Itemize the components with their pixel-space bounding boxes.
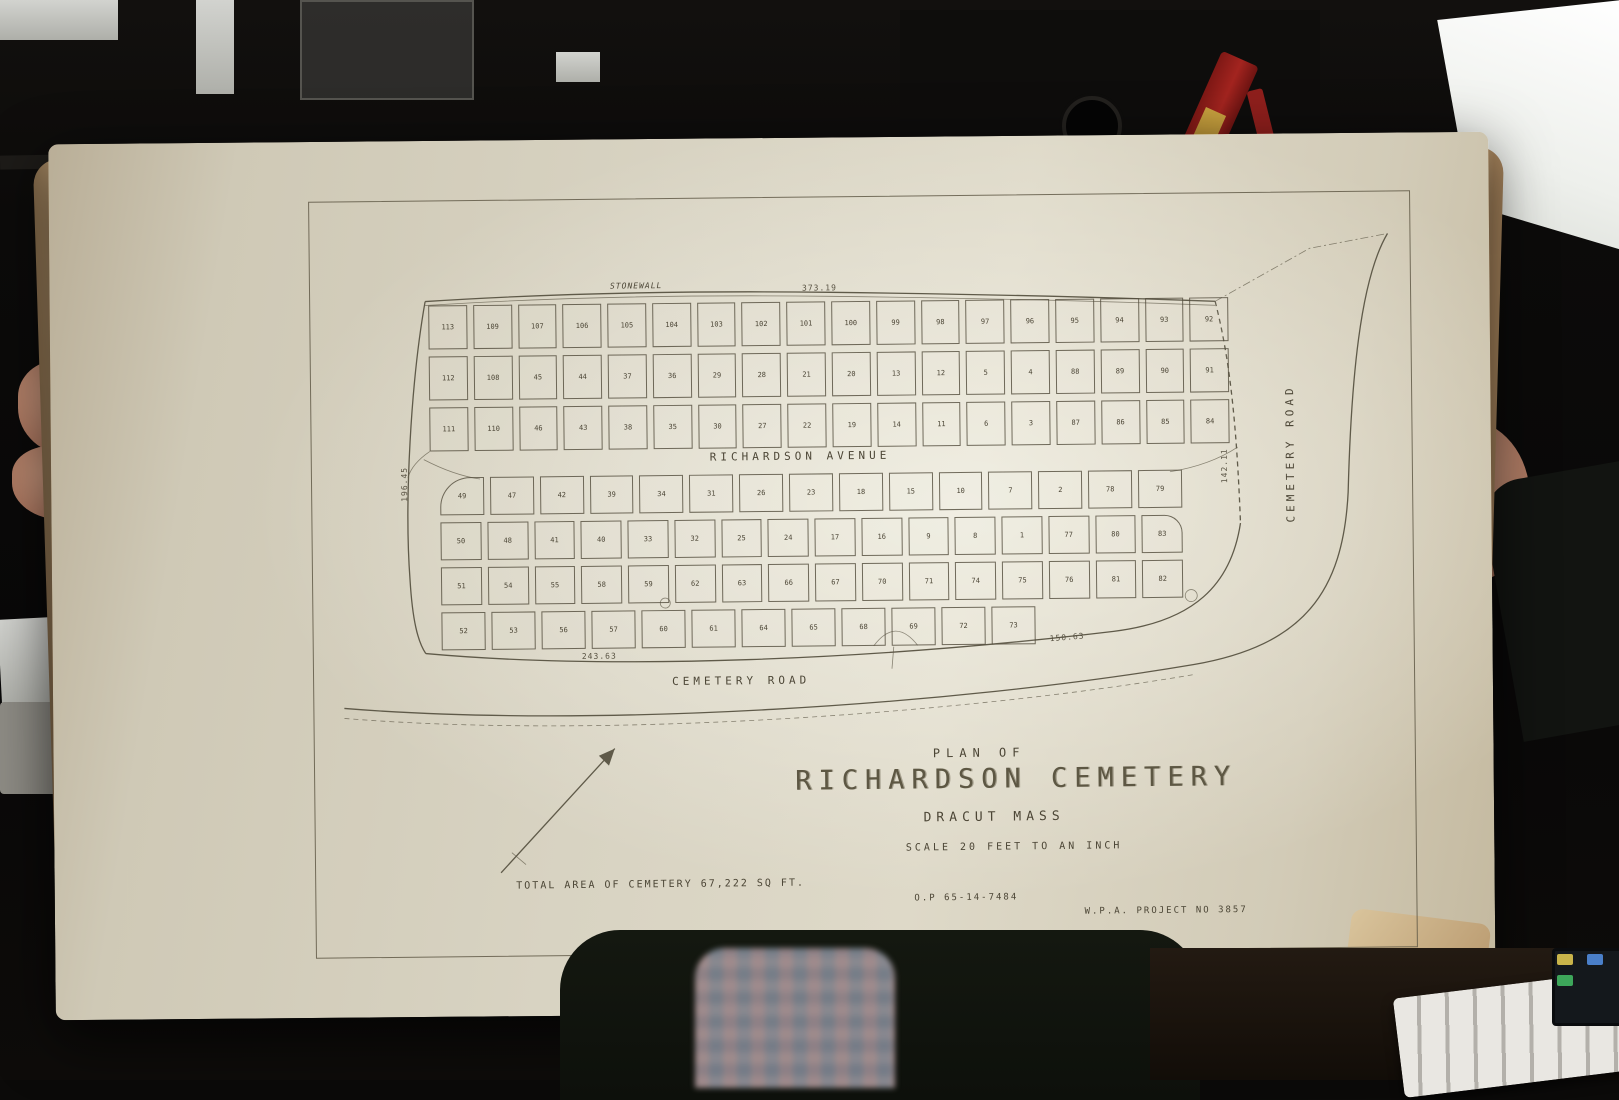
cemetery-lot: 54 — [488, 567, 529, 605]
cemetery-lot: 101 — [786, 301, 825, 345]
shelf-box — [196, 0, 234, 94]
cemetery-road-right-label: CEMETERY ROAD — [1283, 384, 1297, 522]
cemetery-lot: 73 — [991, 606, 1035, 644]
cemetery-lot: 7 — [988, 471, 1032, 509]
cemetery-lot: 32 — [674, 520, 715, 558]
cemetery-lot: 75 — [1002, 561, 1043, 599]
cemetery-lot: 98 — [921, 300, 960, 344]
cemetery-lot: 65 — [791, 608, 835, 646]
device-icon-yellow — [1557, 954, 1573, 965]
cemetery-lot: 44 — [563, 355, 602, 399]
cemetery-lot: 76 — [1049, 561, 1090, 599]
cemetery-lot: 103 — [697, 302, 736, 346]
cemetery-lot: 100 — [831, 301, 870, 345]
dimension-top: 373.19 — [802, 283, 837, 292]
title-plan-of: PLAN OF — [933, 745, 1026, 760]
cemetery-lot: 95 — [1055, 299, 1094, 343]
cemetery-lot: 38 — [608, 405, 647, 449]
cemetery-lot: 69 — [891, 607, 935, 645]
cemetery-lot: 50 — [440, 522, 481, 560]
photo-background: 1131091071061051041031021011009998979695… — [0, 0, 1619, 1080]
device-icon-blue — [1587, 954, 1603, 965]
cemetery-lot: 12 — [921, 351, 960, 395]
cemetery-lot: 28 — [742, 353, 781, 397]
cemetery-lot: 21 — [787, 352, 826, 396]
cemetery-lot: 109 — [473, 305, 512, 349]
cemetery-lot: 86 — [1101, 400, 1140, 444]
cemetery-lot: 53 — [491, 611, 535, 649]
dimension-bottom: 243.63 — [582, 652, 617, 661]
wpa-project-number: W.P.A. PROJECT NO 3857 — [1084, 905, 1247, 917]
cemetery-lot: 67 — [815, 563, 856, 601]
cemetery-lot: 88 — [1056, 350, 1095, 394]
cemetery-lot: 8 — [955, 517, 996, 555]
richardson-avenue-label: RICHARDSON AVENUE — [710, 449, 891, 464]
cemetery-lot: 51 — [441, 567, 482, 605]
cemetery-lot: 83 — [1142, 515, 1183, 553]
cemetery-lot: 58 — [581, 566, 622, 604]
cemetery-lot: 56 — [541, 611, 585, 649]
cemetery-lot: 94 — [1100, 298, 1139, 342]
upper-lot-block: 1131091071061051041031021011009998979695… — [428, 297, 1230, 458]
lot-row: 525356576061646568697273 — [441, 605, 1183, 651]
cemetery-lot: 110 — [474, 407, 513, 451]
cemetery-lot: 68 — [841, 608, 885, 646]
cemetery-lot: 85 — [1146, 400, 1185, 444]
lot-row: 1131091071061051041031021011009998979695… — [428, 297, 1228, 349]
cemetery-lot: 35 — [653, 405, 692, 449]
cemetery-lot: 89 — [1100, 349, 1139, 393]
cemetery-lot: 102 — [742, 302, 781, 346]
cemetery-lot: 105 — [607, 303, 646, 347]
cemetery-lot: 93 — [1145, 298, 1184, 342]
cemetery-lot: 45 — [518, 355, 557, 399]
cemetery-lot: 49 — [440, 477, 484, 515]
cemetery-lot: 74 — [955, 562, 996, 600]
cemetery-lot: 61 — [691, 609, 735, 647]
dimension-left: 196.45 — [400, 467, 409, 502]
cemetery-lot: 63 — [721, 564, 762, 602]
lot-row: 112108454437362928212013125488899091 — [429, 348, 1229, 400]
cemetery-lot: 29 — [697, 353, 736, 397]
shelf-paper — [556, 52, 600, 82]
cemetery-lot: 82 — [1142, 560, 1183, 598]
cemetery-lot: 70 — [862, 563, 903, 601]
device-screen — [1552, 948, 1619, 1026]
cemetery-lot: 91 — [1190, 348, 1229, 392]
plan-drawing: 1131091071061051041031021011009998979695… — [308, 190, 1418, 958]
cemetery-lot: 84 — [1190, 399, 1229, 443]
lot-row: 4947423934312623181510727879 — [440, 470, 1182, 516]
cemetery-lot: 108 — [473, 356, 512, 400]
cemetery-lot: 71 — [908, 562, 949, 600]
cemetery-lot: 42 — [540, 476, 584, 514]
cemetery-lot: 17 — [814, 518, 855, 556]
cemetery-lot: 106 — [562, 304, 601, 348]
cemetery-lot: 9 — [908, 517, 949, 555]
title-place: DRACUT MASS — [923, 809, 1064, 825]
cemetery-lot: 72 — [941, 607, 985, 645]
cemetery-lot: 22 — [787, 403, 826, 447]
cemetery-lot: 112 — [429, 356, 468, 400]
cemetery-lot: 3 — [1011, 401, 1050, 445]
cemetery-lot: 37 — [608, 354, 647, 398]
cemetery-lot: 4 — [1011, 350, 1050, 394]
cemetery-lot: 80 — [1095, 515, 1136, 553]
device-icon-green — [1557, 975, 1573, 986]
cemetery-lot: 107 — [518, 304, 557, 348]
cemetery-lot: 2 — [1038, 471, 1082, 509]
lot-row: 111110464338353027221914116387868584 — [429, 399, 1229, 451]
cemetery-lot: 6 — [967, 401, 1006, 445]
cemetery-lot: 5 — [966, 351, 1005, 395]
cemetery-lot: 90 — [1145, 349, 1184, 393]
cemetery-lot: 111 — [429, 407, 468, 451]
stonewall-label: STONEWALL — [610, 281, 662, 291]
cemetery-lot: 27 — [743, 404, 782, 448]
lot-row: 51545558596263666770717475768182 — [441, 560, 1183, 606]
cemetery-lot: 113 — [428, 305, 467, 349]
cemetery-lot: 99 — [876, 300, 915, 344]
cemetery-lot: 26 — [739, 474, 783, 512]
cemetery-lot: 34 — [639, 475, 683, 513]
title-scale: SCALE 20 FEET TO AN INCH — [906, 840, 1123, 853]
cemetery-lot: 96 — [1010, 299, 1049, 343]
cemetery-lot: 40 — [581, 521, 622, 559]
cemetery-lot: 31 — [689, 474, 733, 512]
cemetery-lot: 59 — [628, 565, 669, 603]
cemetery-lot: 25 — [721, 519, 762, 557]
cemetery-lot: 13 — [876, 351, 915, 395]
title-cemetery-name: RICHARDSON CEMETERY — [795, 761, 1237, 797]
cemetery-lot: 62 — [675, 565, 716, 603]
cemetery-lot: 77 — [1048, 516, 1089, 554]
cemetery-lot: 104 — [652, 303, 691, 347]
cemetery-lot: 55 — [534, 566, 575, 604]
lower-lot-block: 4947423934312623181510727879504841403332… — [440, 470, 1184, 658]
cemetery-lot: 81 — [1095, 560, 1136, 598]
cemetery-lot: 18 — [839, 473, 883, 511]
cemetery-lot: 47 — [490, 476, 534, 514]
cemetery-lot: 19 — [832, 403, 871, 447]
sleeve-right — [1479, 458, 1619, 742]
cemetery-lot: 39 — [590, 475, 634, 513]
cemetery-lot: 48 — [487, 522, 528, 560]
cemetery-lot: 33 — [627, 520, 668, 558]
cemetery-lot: 92 — [1189, 297, 1228, 341]
dimension-right: 142.11 — [1220, 448, 1229, 483]
cemetery-lot: 60 — [641, 610, 685, 648]
cemetery-lot: 15 — [889, 472, 933, 510]
cemetery-road-bottom-label: CEMETERY ROAD — [672, 674, 810, 688]
cemetery-lot: 30 — [698, 404, 737, 448]
op-number: O.P 65-14-7484 — [914, 892, 1018, 903]
cemetery-lot: 20 — [832, 352, 871, 396]
cemetery-lot: 87 — [1056, 401, 1095, 445]
cemetery-lot: 41 — [534, 521, 575, 559]
shelf-box — [0, 0, 118, 40]
lot-row: 50484140333225241716981778083 — [440, 515, 1182, 561]
plastic-bin — [300, 0, 474, 100]
cemetery-lot: 14 — [877, 402, 916, 446]
cemetery-lot: 57 — [591, 610, 635, 648]
cemetery-lot: 66 — [768, 564, 809, 602]
cemetery-lot: 10 — [939, 472, 983, 510]
cemetery-lot: 11 — [922, 402, 961, 446]
cemetery-lot: 23 — [789, 473, 833, 511]
cemetery-lot: 79 — [1138, 470, 1182, 508]
cemetery-lot: 52 — [441, 612, 485, 650]
cemetery-lot: 46 — [519, 406, 558, 450]
cemetery-lot: 36 — [653, 354, 692, 398]
cemetery-lot: 43 — [564, 406, 603, 450]
cemetery-lot: 78 — [1088, 470, 1132, 508]
cemetery-lot: 16 — [861, 518, 902, 556]
cemetery-lot: 97 — [966, 300, 1005, 344]
cemetery-lot: 1 — [1001, 516, 1042, 554]
blurred-face — [695, 948, 895, 1088]
cemetery-lot: 64 — [741, 609, 785, 647]
cemetery-lot: 24 — [768, 519, 809, 557]
